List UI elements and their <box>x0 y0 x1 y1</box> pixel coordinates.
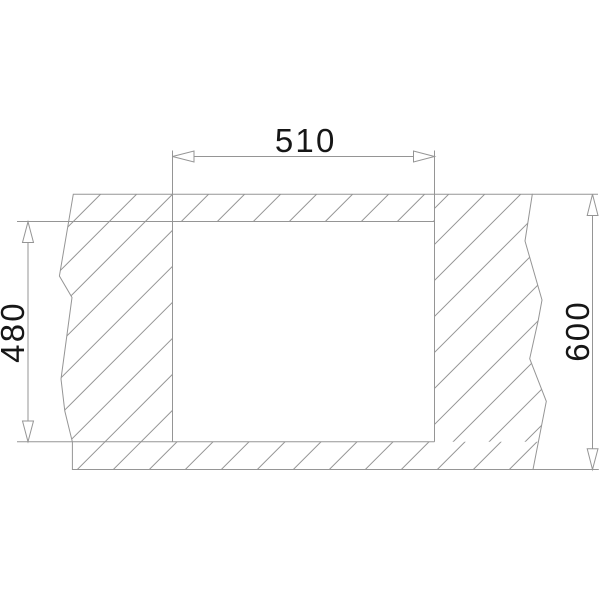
svg-text:510: 510 <box>275 122 337 159</box>
svg-text:600: 600 <box>559 300 596 362</box>
svg-text:480: 480 <box>0 301 31 363</box>
